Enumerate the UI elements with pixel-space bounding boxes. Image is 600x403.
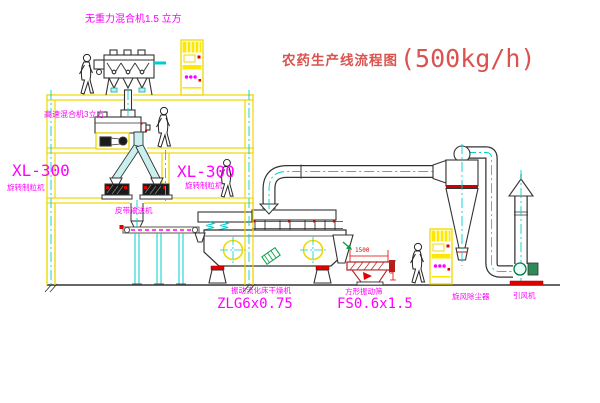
exhaust-duct <box>260 161 446 215</box>
control-cabinet-roof <box>181 40 203 95</box>
person-ground <box>411 243 425 283</box>
person-roof <box>80 54 94 94</box>
induced-draft-fan <box>510 263 543 285</box>
label-cyclone: 旋风除尘器 <box>452 293 490 301</box>
label-high-speed-mixer: 高速混合机3立方 <box>44 111 104 119</box>
label-gravity-mixer: 无重力混合机1.5 立方 <box>85 15 182 25</box>
label-sieve-name: 方形振动筛 <box>345 288 383 296</box>
gravity-mixer <box>94 50 166 114</box>
label-dryer-model: ZLG6x0.75 <box>217 297 293 311</box>
dimension-sieve-height: 340 <box>387 263 393 274</box>
flow-diagram-canvas: 农药生产线流程图 (500kg/h) 无重力混合机1.5 立方 高速混合机3立方… <box>0 0 600 403</box>
title-capacity: (500kg/h) <box>400 44 535 73</box>
label-belt-conveyor: 皮带输送机 <box>115 207 153 215</box>
label-dryer-name: 振动流化床干燥机 <box>231 287 291 295</box>
label-granulator-right-model: XL-300 <box>177 164 235 180</box>
granulator-left <box>102 178 132 199</box>
label-granulator-left-name: 旋转制粒机 <box>7 184 45 192</box>
label-fan: 引风机 <box>513 292 536 300</box>
label-granulator-left-model: XL-300 <box>12 163 70 179</box>
diagram-title: 农药生产线流程图 (500kg/h) <box>282 44 535 73</box>
fluid-bed-dryer <box>195 210 353 283</box>
control-cabinet-ground <box>430 229 452 284</box>
dimension-sieve-length: 1500 <box>355 248 369 254</box>
label-sieve-model: FS0.6x1.5 <box>337 297 413 311</box>
title-text: 农药生产线流程图 <box>282 49 398 69</box>
person-floor2 <box>157 107 171 147</box>
belt-conveyor <box>120 225 200 284</box>
label-granulator-right-name: 旋转制粒机 <box>185 182 223 190</box>
